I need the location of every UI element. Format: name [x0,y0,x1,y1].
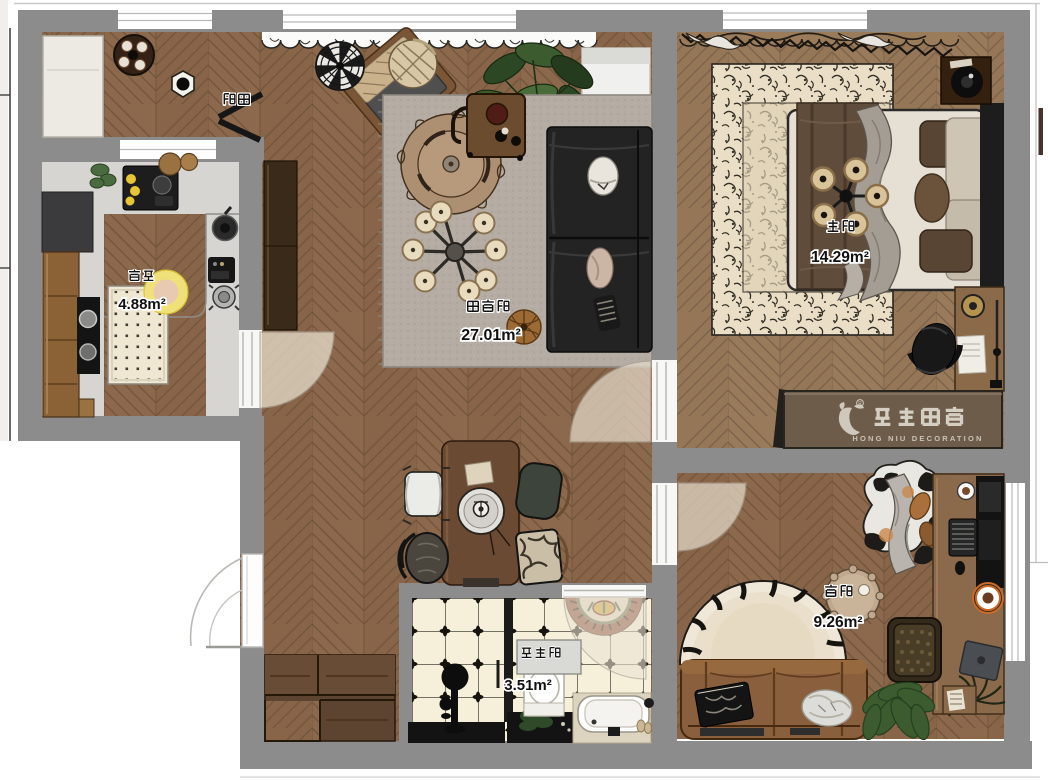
svg-text:3.51m²: 3.51m² [504,677,552,694]
svg-text:27.01m²: 27.01m² [461,327,521,344]
svg-text:HONG NIU DECORATION: HONG NIU DECORATION [852,434,983,443]
svg-text:4.88m²: 4.88m² [118,296,166,313]
svg-text:R: R [858,401,862,407]
svg-text:14.29m²: 14.29m² [811,249,869,266]
svg-text:9.26m²: 9.26m² [813,614,862,631]
